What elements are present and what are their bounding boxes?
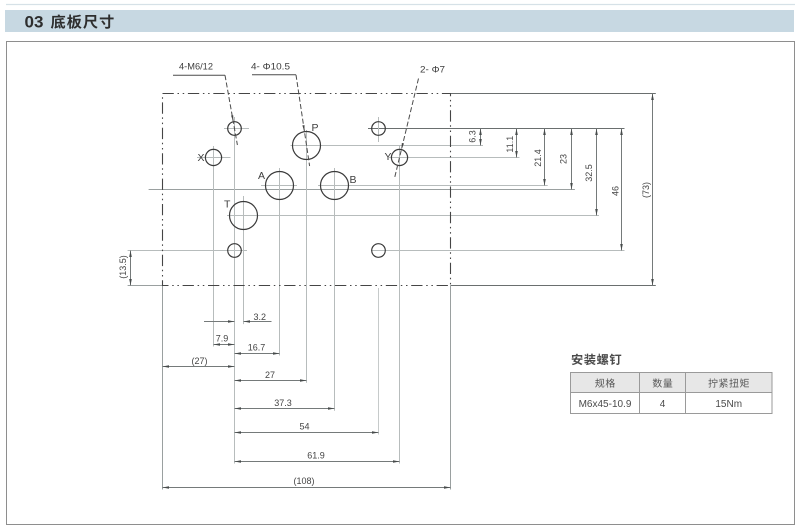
svg-text:P: P <box>312 122 319 134</box>
svg-text:37.3: 37.3 <box>274 398 292 408</box>
svg-text:3.2: 3.2 <box>254 312 267 322</box>
svg-text:4- Φ10.5: 4- Φ10.5 <box>251 62 290 72</box>
svg-text:6.3: 6.3 <box>468 130 478 143</box>
svg-text:(108): (108) <box>293 476 314 486</box>
svg-text:16.7: 16.7 <box>248 342 266 352</box>
svg-text:15Nm: 15Nm <box>715 399 742 410</box>
svg-text:X: X <box>198 152 205 164</box>
svg-text:(27): (27) <box>191 356 207 366</box>
svg-text:03: 03 <box>25 13 44 32</box>
svg-text:46: 46 <box>611 186 621 196</box>
svg-text:54: 54 <box>299 422 309 432</box>
svg-text:A: A <box>258 170 265 182</box>
svg-text:2- Φ7: 2- Φ7 <box>420 65 445 76</box>
svg-text:7.9: 7.9 <box>216 334 229 344</box>
svg-text:61.9: 61.9 <box>307 450 325 460</box>
svg-text:21.4: 21.4 <box>533 149 543 167</box>
svg-text:B: B <box>350 174 357 186</box>
svg-text:11.1: 11.1 <box>505 136 515 153</box>
svg-text:27: 27 <box>265 370 275 380</box>
svg-text:T: T <box>224 198 231 210</box>
svg-text:32.5: 32.5 <box>584 164 594 182</box>
svg-text:(73): (73) <box>641 182 651 198</box>
svg-text:4: 4 <box>660 399 666 410</box>
svg-text:23: 23 <box>559 154 569 164</box>
svg-text:Y: Y <box>385 151 392 163</box>
svg-text:(13.5): (13.5) <box>118 255 128 279</box>
svg-text:4-M6/12: 4-M6/12 <box>179 62 213 72</box>
svg-text:M6x45-10.9: M6x45-10.9 <box>579 399 632 410</box>
